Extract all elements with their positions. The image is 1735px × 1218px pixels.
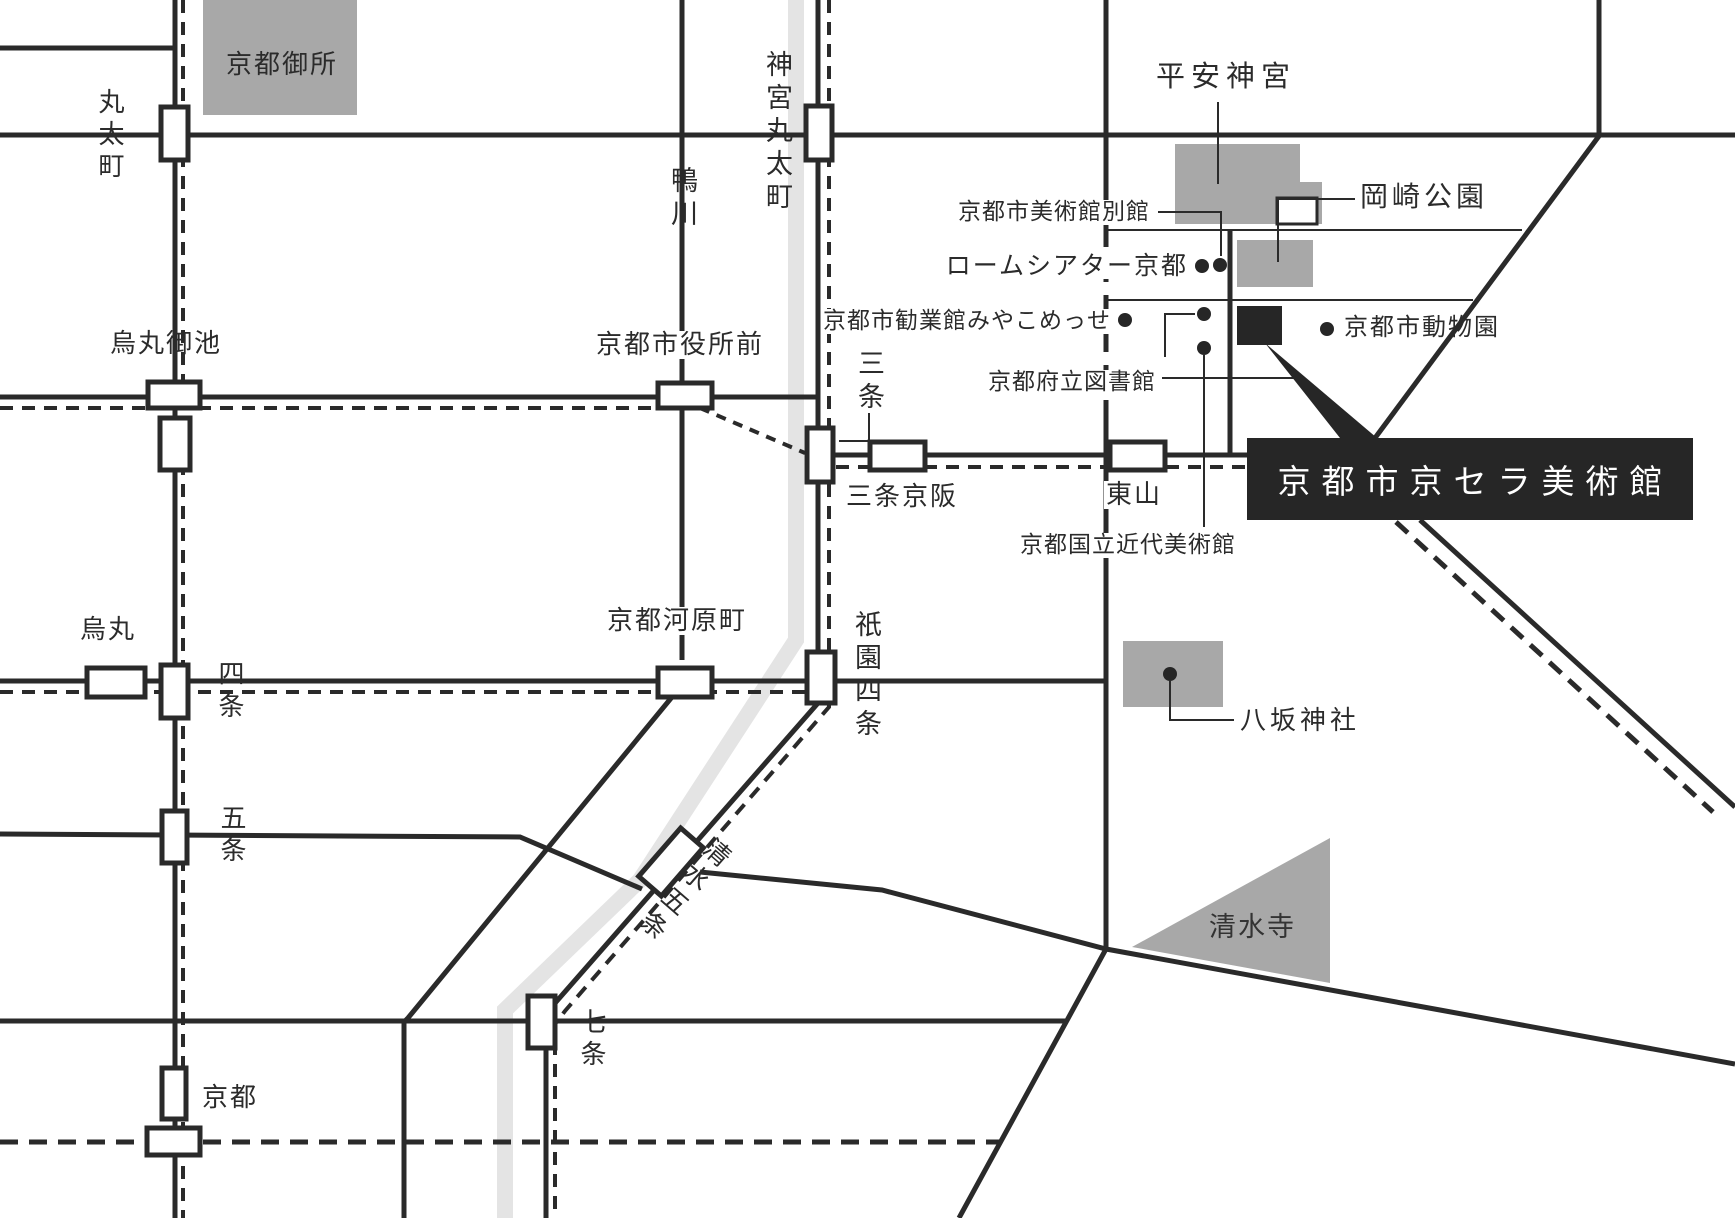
station-label-shijo: 四条 — [216, 660, 242, 724]
museum-name-plate: 京都市京セラ美術館 — [1247, 438, 1693, 520]
label-kiyomizudera: 清水寺 — [1209, 914, 1296, 941]
station-box-jingu-marutamachi — [806, 106, 832, 160]
dot-bekkan — [1213, 258, 1227, 272]
station-box-gion-shijo — [807, 652, 835, 703]
station-box-kyoto-kawaramachi — [658, 668, 712, 697]
station-label-gojo: 五条 — [218, 804, 244, 868]
station-label-shiyakusho-mae: 京都市役所前 — [594, 331, 766, 359]
station-box-shiyakusho-mae — [658, 383, 712, 408]
label-bekkan: 京都市美術館別館 — [956, 200, 1152, 225]
label-heian-jingu: 平安神宮 — [1156, 62, 1296, 91]
dot-miyako-messe-label — [1118, 313, 1132, 327]
okazaki-park-area — [1237, 240, 1313, 287]
station-label-sanjo-keihan: 三条京阪 — [846, 484, 958, 510]
station-box-karasuma-oike-karasuma — [160, 418, 190, 470]
dot-yasaka — [1163, 667, 1177, 681]
station-box-sanjo-keihan — [870, 442, 925, 470]
station-label-kyoto: 京都 — [202, 1085, 258, 1111]
station-label-sanjo: 三条 — [855, 349, 882, 415]
station-box-higashiyama — [1110, 442, 1165, 470]
station-label-gion-shijo: 祇園四条 — [852, 610, 879, 742]
dot-momak — [1197, 341, 1211, 355]
keage-diagonal-dashed — [1396, 522, 1713, 812]
leader-sanjo — [839, 413, 869, 441]
station-box-shichijo — [528, 996, 555, 1048]
station-label-karasuma: 烏丸 — [80, 617, 136, 643]
station-box-gojo — [162, 811, 187, 863]
station-box-marutamachi — [161, 107, 188, 160]
access-map: 京都御所 丸太町 神宮丸太町 鴨川 平安神宮 京都市美術館別館 岡崎公園 ローム… — [0, 0, 1735, 1218]
label-gosho: 京都御所 — [226, 52, 338, 78]
dot-zoo — [1320, 322, 1334, 336]
gojo-street-west — [0, 834, 642, 889]
label-okazaki-park: 岡崎公園 — [1360, 183, 1488, 211]
label-momak: 京都国立近代美術館 — [1018, 533, 1238, 558]
dot-miyako-messe — [1197, 307, 1211, 321]
label-kamo-river: 鴨川 — [668, 166, 695, 232]
station-label-shichijo: 七条 — [578, 1008, 604, 1072]
higashioji-street-south — [959, 400, 1106, 1218]
station-label-marutamachi: 丸太町 — [96, 88, 122, 184]
label-rohm-theatre: ロームシアター京都 — [944, 252, 1190, 279]
museum-square — [1237, 306, 1282, 345]
station-box-kyoto-subway — [162, 1068, 186, 1119]
station-label-jingu-marutamachi: 神宮丸太町 — [763, 50, 790, 215]
station-box-karasuma-oike-tozai — [148, 382, 200, 408]
station-label-kyoto-kawaramachi: 京都河原町 — [605, 607, 749, 635]
label-yasaka-shrine: 八坂神社 — [1240, 708, 1360, 734]
station-box-karasuma-hankyu — [87, 668, 145, 697]
label-zoo: 京都市動物園 — [1344, 315, 1500, 339]
station-label-higashiyama: 東山 — [1104, 481, 1164, 509]
station-box-shijo — [161, 665, 188, 718]
museum-callout-wedge — [1265, 343, 1377, 438]
station-box-kyoto-jr — [147, 1128, 200, 1155]
label-miyako-messe: 京都市勧業館みやこめっせ — [821, 309, 1113, 334]
annex-building-box — [1277, 198, 1317, 224]
label-pref-library: 京都府立図書館 — [986, 370, 1158, 395]
keage-diagonal-solid — [1420, 520, 1735, 807]
leader-miyako-messe — [1165, 314, 1195, 357]
station-box-sanjo — [807, 428, 833, 482]
station-label-karasuma-oike: 烏丸御池 — [110, 331, 222, 357]
dot-rohm-theatre — [1195, 259, 1209, 273]
